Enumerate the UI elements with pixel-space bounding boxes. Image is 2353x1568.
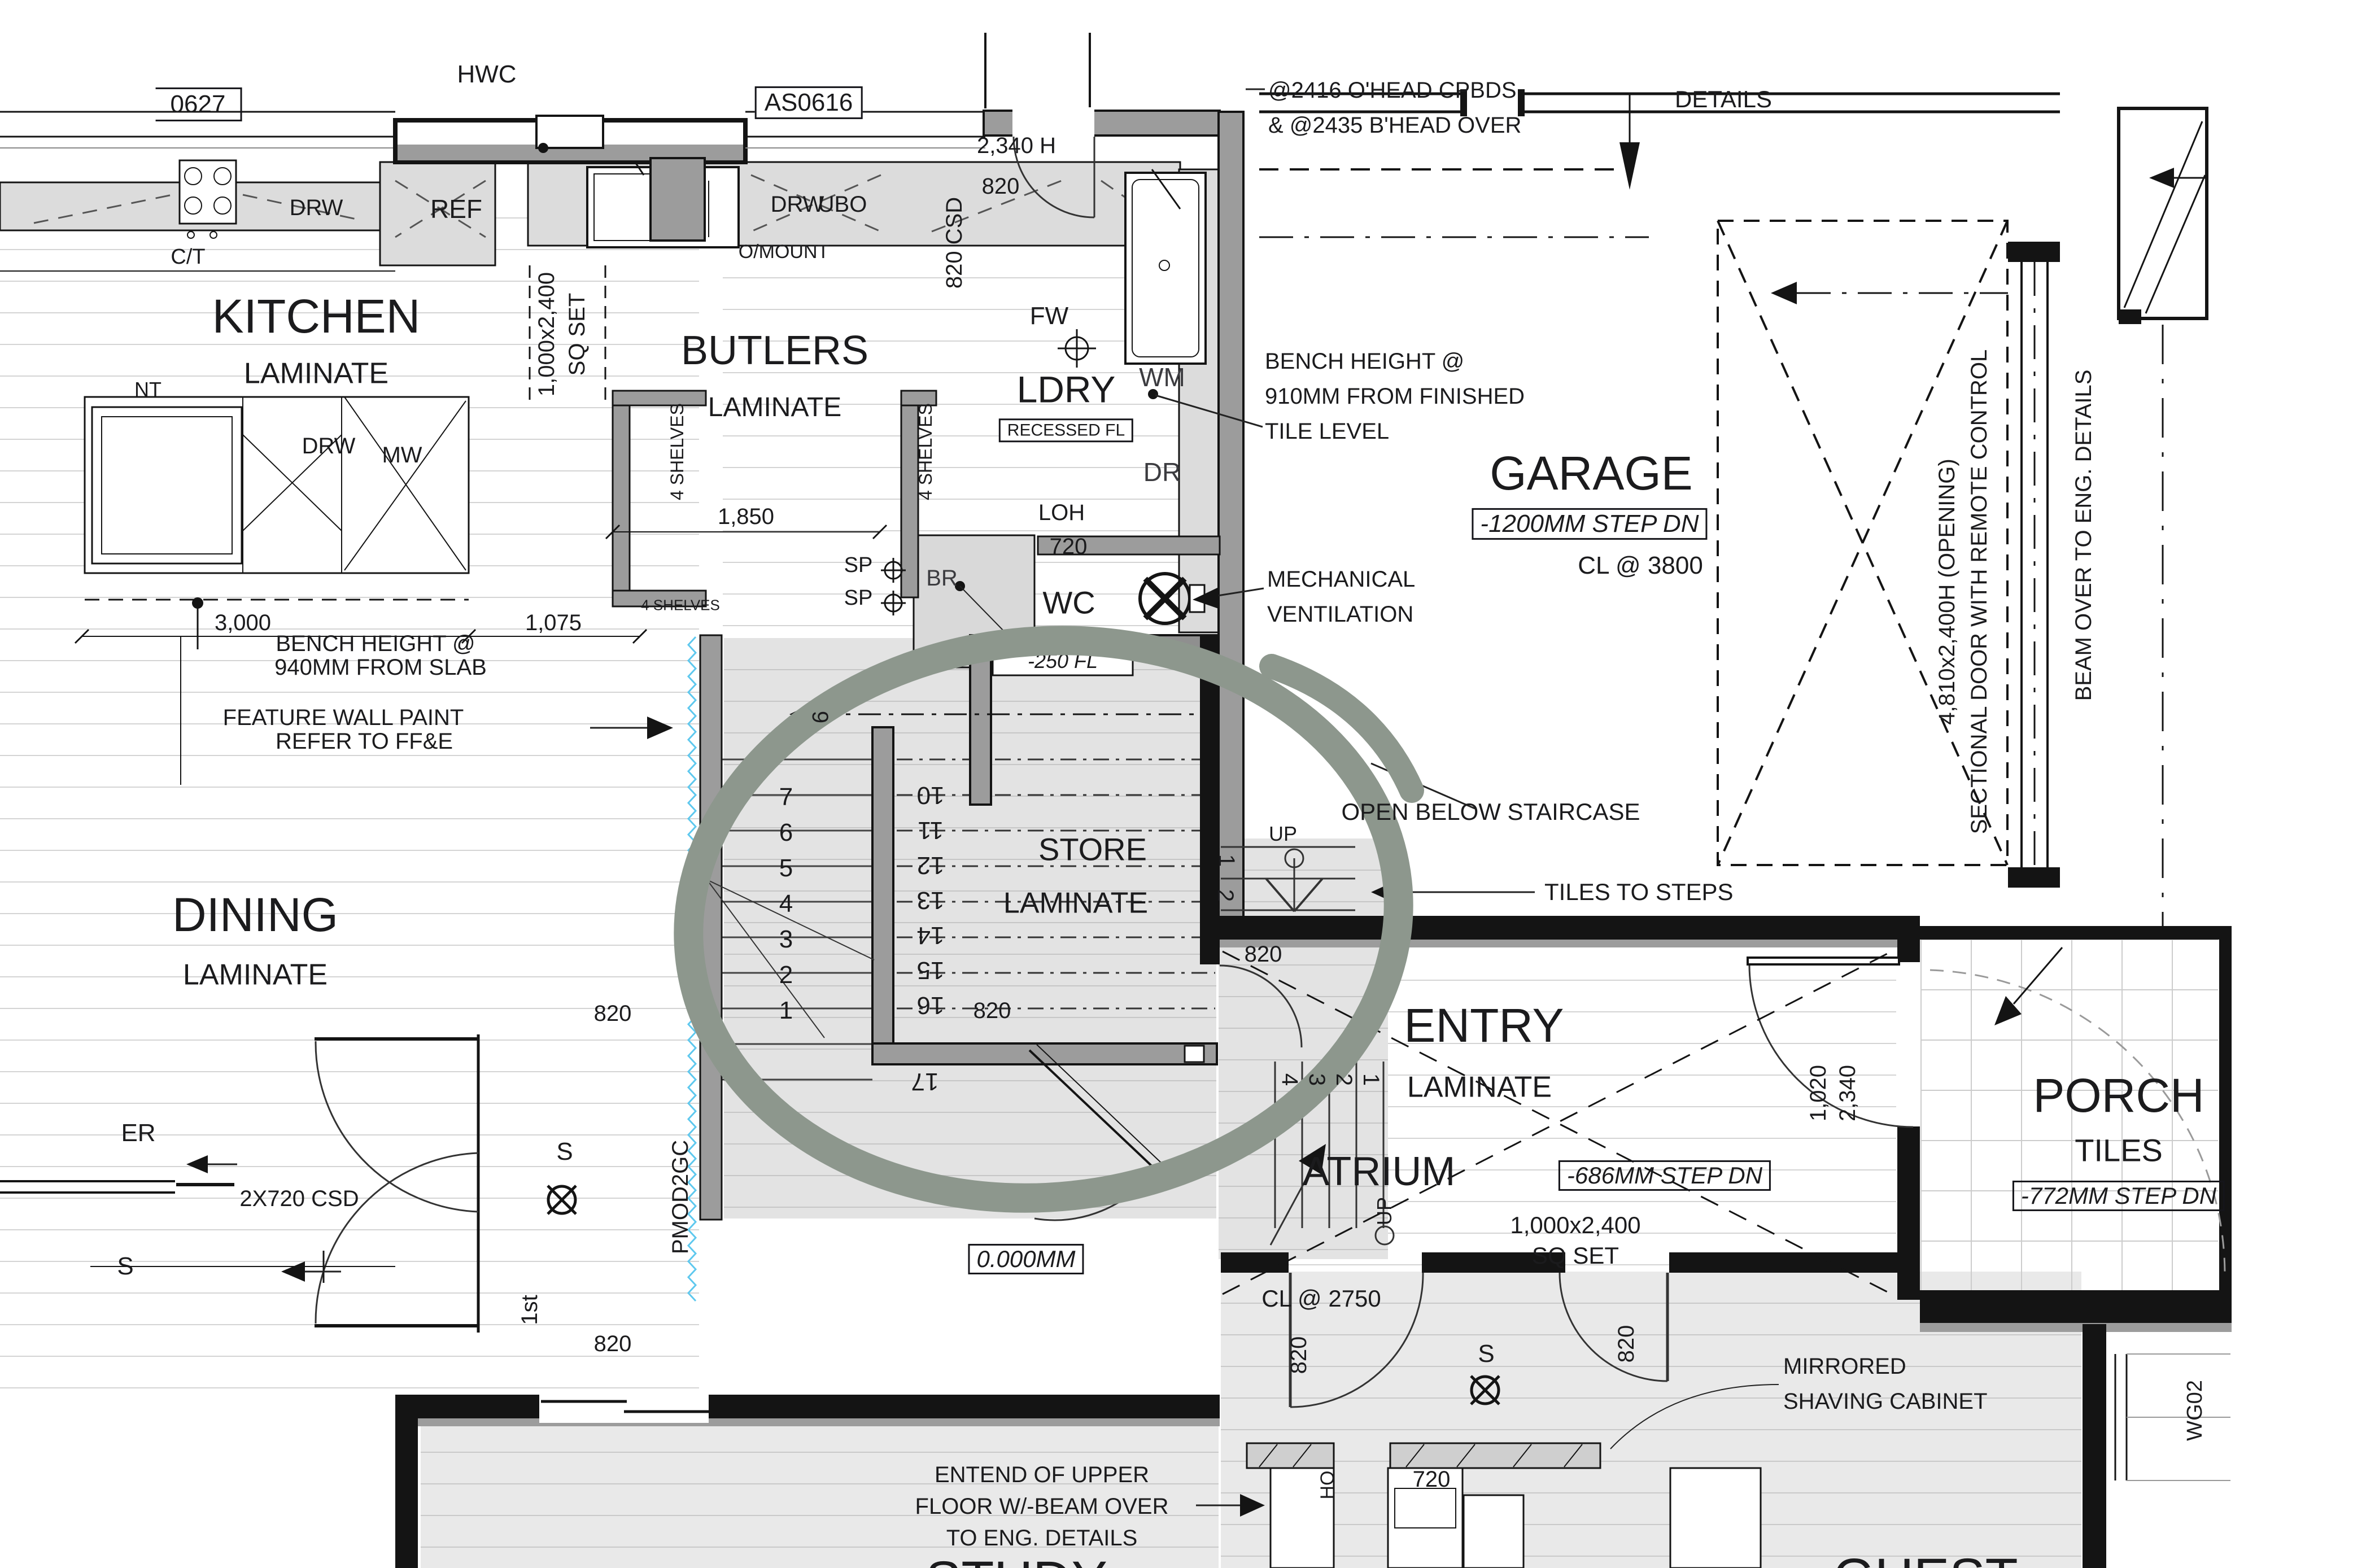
stair-num: 5	[779, 855, 793, 881]
stair-num: 1	[779, 998, 793, 1024]
door-820-b: 820	[594, 1332, 632, 1356]
store-finish: LAMINATE	[1003, 888, 1148, 919]
stair-num: 7	[779, 784, 793, 810]
entry-sqset-2: SQ SET	[1532, 1243, 1619, 1268]
room-entry: ENTRY	[1404, 1001, 1564, 1050]
ubo-label: UBO	[818, 193, 867, 216]
first-floor-label: 1st	[518, 1295, 542, 1325]
island-drw-label: DRW	[302, 434, 356, 458]
stair-num: 15	[917, 957, 945, 983]
mech-note-1: MECHANICAL	[1267, 567, 1415, 591]
er-partial-label: ER	[121, 1120, 155, 1146]
bench940-note-1: BENCH HEIGHT @	[276, 632, 475, 656]
dr-label: DR	[1143, 458, 1181, 486]
ho-partial-label: HO	[1318, 1471, 1338, 1500]
mech-note-2: VENTILATION	[1267, 602, 1413, 626]
entry-finish: LAMINATE	[1407, 1072, 1552, 1103]
extend-note-2: FLOOR W/-BEAM OVER	[915, 1495, 1169, 1518]
up-label-1: UP	[1269, 823, 1297, 845]
loh-label: LOH	[1038, 501, 1085, 525]
island-mw-label: MW	[382, 443, 422, 467]
s-switch-bath-label: S	[1478, 1341, 1494, 1367]
stair-num: 14	[917, 922, 945, 948]
beam-over-note: BEAM OVER TO ENG. DETAILS	[2072, 370, 2096, 701]
stair-num: 4	[1278, 1073, 1302, 1086]
dim-1075: 1,075	[525, 611, 582, 635]
stair-num: 1	[1359, 1073, 1383, 1086]
door-820-a: 820	[594, 1002, 632, 1025]
extend-note-3: TO ENG. DETAILS	[946, 1526, 1138, 1550]
room-guest-clipped: GUEST	[1833, 1550, 2018, 1568]
garage-cl-label: CL @ 3800	[1578, 553, 1703, 579]
stair-num: 2	[1332, 1073, 1356, 1086]
shelves-bottom-label: 4 SHELVES	[641, 597, 720, 613]
dim-3000: 3,000	[215, 611, 271, 635]
room-ldry: LDRY	[1017, 370, 1116, 409]
room-porch: PORCH	[2033, 1071, 2204, 1120]
porch-finish: TILES	[2075, 1134, 2163, 1168]
bench910-note-1: BENCH HEIGHT @	[1265, 350, 1464, 373]
pmod2gc-label: PMOD2GC	[669, 1140, 692, 1254]
up-label-2: UP	[1374, 1197, 1395, 1225]
stair-num: 2	[779, 962, 793, 988]
room-store: STORE	[1038, 833, 1147, 867]
shelves-right-label: 4 SHELVES	[916, 403, 936, 500]
ohead-note-1: @2416 O'HEAD CPBDS	[1268, 78, 1517, 102]
entry-sqset-1: 1,000x2,400	[1510, 1213, 1640, 1238]
shelves-left-label: 4 SHELVES	[668, 403, 687, 500]
stair-door-820: 820	[1245, 942, 1282, 966]
stair-num: 10	[917, 782, 945, 808]
kitchen-finish: LAMINATE	[244, 359, 388, 390]
open-below-note: OPEN BELOW STAIRCASE	[1342, 800, 1640, 824]
kitchen-sqset-2: SQ SET	[565, 293, 589, 376]
stair-num: 3	[779, 927, 793, 953]
ct-label: C/T	[171, 246, 205, 269]
room-dining: DINING	[172, 890, 338, 940]
omount-label: O/MOUNT	[739, 242, 830, 263]
garage-door-note-1: 4,810x2,400H (OPENING)	[1935, 458, 1959, 724]
dining-finish: LAMINATE	[183, 960, 328, 991]
ref-box-right: AS0616	[755, 86, 863, 119]
stair-num: 2	[1213, 889, 1237, 902]
mirror-note-2: SHAVING CABINET	[1783, 1390, 1988, 1413]
details-label: DETAILS	[1675, 87, 1772, 112]
kitchen-sqset-1: 1,000x2,400	[535, 272, 558, 396]
stair-num: 16	[917, 992, 945, 1018]
dim-2340h: 2,340 H	[977, 134, 1056, 158]
ohead-note-2: & @2435 B'HEAD OVER	[1268, 113, 1521, 137]
garage-door-note-2: SECTIONAL DOOR WITH REMOTE CONTROL	[1967, 350, 1991, 835]
stair-num: 13	[917, 887, 945, 913]
stair-num-17: 17	[911, 1068, 939, 1094]
room-wc: WC	[1042, 587, 1095, 620]
sp2-label: SP	[844, 587, 873, 610]
ref-fridge-label: REF	[430, 195, 482, 222]
dim-1850: 1,850	[718, 505, 774, 529]
room-study-clipped: STUDY	[926, 1553, 1107, 1568]
tiles-to-steps-note: TILES TO STEPS	[1544, 880, 1734, 905]
bath-820-a: 820	[1287, 1336, 1311, 1374]
loh-720-label: 720	[1050, 535, 1088, 558]
drw-butlers-label: DRW	[771, 193, 824, 216]
hwc-label: HWC	[457, 62, 516, 88]
feature-wall-note-1: FEATURE WALL PAINT	[223, 706, 464, 730]
bench910-note-3: TILE LEVEL	[1265, 420, 1389, 443]
room-butlers: BUTLERS	[681, 330, 868, 373]
fw-label: FW	[1030, 303, 1068, 329]
island-bench	[85, 397, 469, 573]
bath-820-b: 820	[1614, 1325, 1638, 1363]
stair-num: 1	[1215, 854, 1238, 867]
bench910-note-2: 910MM FROM FINISHED	[1265, 385, 1525, 408]
csd-820-label: 820 CSD	[942, 197, 966, 289]
ldry-door-820: 820	[982, 174, 1020, 198]
level-box: 0.000MM	[968, 1244, 1084, 1274]
butlers-finish: LAMINATE	[708, 394, 841, 422]
room-atrium: ATRIUM	[1303, 1151, 1456, 1194]
atrium-step-box: -686MM STEP DN	[1559, 1160, 1771, 1191]
porch-step-box: -772MM STEP DN	[2013, 1181, 2225, 1211]
stair-num: 12	[917, 852, 945, 878]
crosshair-icon	[1058, 329, 1096, 368]
stair-num: 3	[1305, 1073, 1329, 1086]
recessed-fl-box: RECESSED FL	[999, 418, 1133, 442]
bench940-note-2: 940MM FROM SLAB	[274, 656, 487, 679]
switch-icon-left	[548, 1186, 576, 1214]
csd-2x720-label: 2X720 CSD	[239, 1187, 359, 1211]
door-dim-2340: 2,340	[1836, 1065, 1859, 1121]
s-switch-mid-label: S	[117, 1253, 133, 1279]
stair-num: 4	[779, 891, 793, 917]
drw-label: DRW	[290, 196, 343, 220]
garage-step-box: -1200MM STEP DN	[1472, 508, 1707, 540]
dim-720-label: 720	[1413, 1467, 1451, 1491]
room-kitchen: KITCHEN	[212, 291, 421, 341]
br-label: BR	[926, 566, 958, 590]
s-switch-left-label: S	[556, 1139, 573, 1165]
mirror-note-1: MIRRORED	[1783, 1355, 1906, 1378]
cl-2750-label: CL @ 2750	[1261, 1286, 1381, 1311]
sp1-label: SP	[844, 554, 873, 577]
floor-plan-canvas: -250 FL 0627 HWC AS0616 DETAILS DRW REF …	[0, 0, 2353, 1568]
wm-label: WM	[1139, 364, 1185, 391]
plan-linework: -250 FL	[0, 0, 2353, 1568]
window-wg02-label: WG02	[2184, 1380, 2207, 1441]
door-dim-1020: 1,020	[1806, 1065, 1830, 1121]
stair-num-9: 9	[808, 711, 832, 723]
stair-num: 11	[918, 817, 944, 843]
nt-partial-label: NT	[134, 379, 161, 400]
store-door-820: 820	[973, 999, 1011, 1023]
stair-num: 6	[779, 820, 793, 846]
ref-box-left: 0627	[156, 88, 242, 121]
extend-note-1: ENTEND OF UPPER	[935, 1463, 1149, 1487]
room-garage: GARAGE	[1490, 448, 1692, 498]
feature-wall-note-2: REFER TO FF&E	[276, 730, 453, 753]
